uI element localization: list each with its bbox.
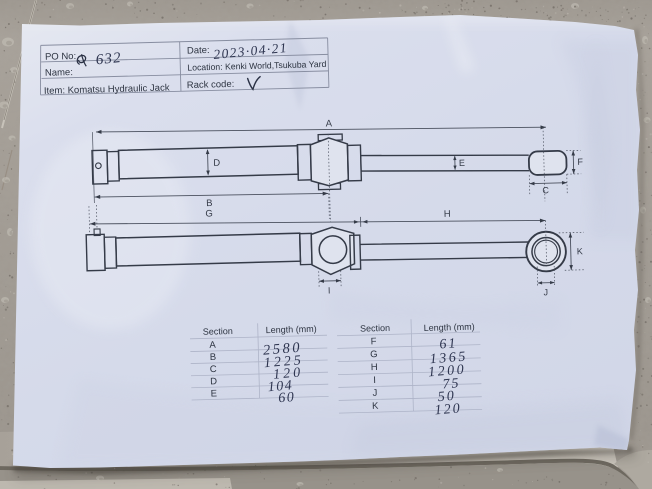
svg-text:Date:: Date: [187,45,210,57]
svg-text:Section: Section [203,326,233,337]
svg-text:F: F [371,336,377,347]
svg-text:E: E [459,158,465,168]
svg-text:Length (mm): Length (mm) [424,322,475,333]
svg-text:B: B [210,352,217,363]
svg-text:I: I [328,285,331,295]
svg-text:A: A [326,118,333,129]
svg-text:Name:: Name: [45,67,73,79]
svg-text:C: C [210,364,217,375]
svg-text:60: 60 [278,390,296,406]
svg-text:H: H [371,362,378,373]
svg-text:C: C [542,185,549,195]
svg-text:K: K [577,246,583,256]
svg-text:E: E [211,388,218,399]
svg-text:H: H [444,209,451,220]
svg-text:PO No:: PO No: [45,51,76,63]
svg-text:G: G [370,349,378,360]
svg-text:Rack code:: Rack code: [187,79,235,91]
svg-text:632: 632 [95,50,123,68]
svg-text:F: F [577,157,583,167]
svg-text:G: G [205,208,213,219]
svg-text:K: K [372,401,379,412]
svg-text:J: J [543,287,548,297]
svg-text:I: I [373,375,376,386]
svg-text:J: J [372,388,377,399]
svg-text:Section: Section [360,323,390,334]
svg-text:B: B [206,198,213,209]
svg-text:120: 120 [434,401,462,418]
svg-text:D: D [213,158,220,169]
svg-text:A: A [209,340,216,351]
svg-text:D: D [210,376,217,387]
svg-text:Length (mm): Length (mm) [266,324,317,335]
